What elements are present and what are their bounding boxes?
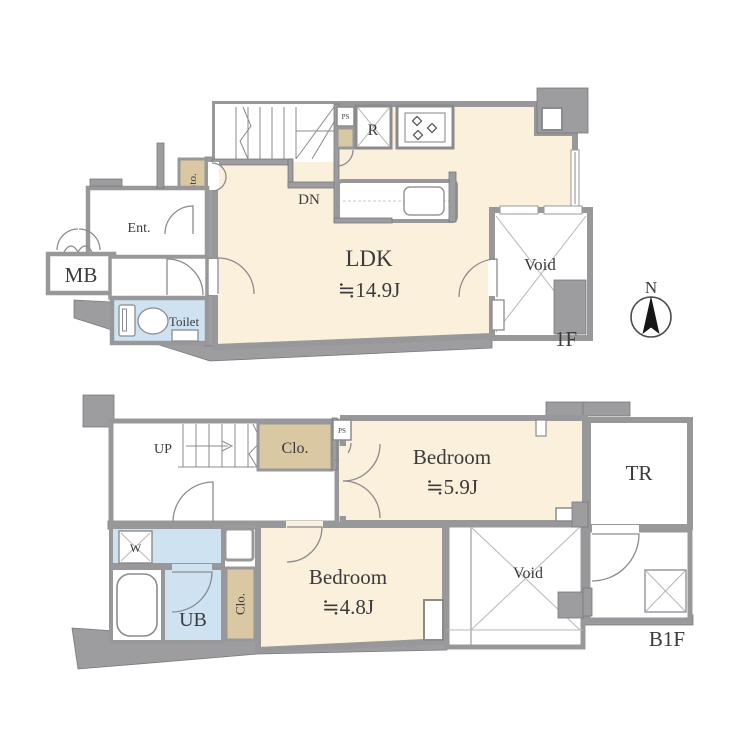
bedroom-b: Bedroom ≒4.8J bbox=[258, 521, 445, 650]
mailbox-label: MB bbox=[65, 263, 98, 287]
small-closet-box bbox=[337, 128, 354, 148]
void-1f-label: Void bbox=[524, 255, 556, 274]
north-label: N bbox=[645, 278, 657, 297]
wall-segment bbox=[90, 179, 122, 186]
refrigerator-label: R bbox=[368, 122, 379, 139]
bedroom-a-room bbox=[343, 418, 585, 523]
bedroom-a-name-label: Bedroom bbox=[413, 445, 491, 469]
stairs-up-label: UP bbox=[154, 442, 172, 457]
wall-block bbox=[554, 280, 586, 334]
floor-plan-canvas: DN PS R Sto bbox=[0, 0, 734, 734]
door-opening bbox=[488, 260, 497, 296]
door-opening bbox=[592, 525, 639, 534]
bedroom-b-name-label: Bedroom bbox=[309, 565, 387, 589]
trunk-room-label: TR bbox=[626, 461, 653, 485]
window bbox=[544, 206, 582, 214]
wall-segment bbox=[449, 172, 456, 222]
pillar bbox=[424, 600, 443, 640]
kitchen-sink bbox=[404, 187, 444, 215]
pipe-space-1f-label: PS bbox=[342, 113, 350, 121]
wall-segment bbox=[157, 143, 164, 188]
void-b1f-label: Void bbox=[513, 565, 543, 582]
washbasin-box bbox=[225, 529, 253, 560]
storage-right-room bbox=[583, 525, 690, 620]
floor-b1f-plan: UP Clo. PS Bedroom ≒5.9J W bbox=[72, 395, 693, 669]
floor-b1f-label: B1F bbox=[649, 627, 685, 651]
wall-block bbox=[558, 592, 583, 618]
door-opening bbox=[208, 162, 219, 190]
toilet-cabinet bbox=[172, 330, 198, 341]
wall-block bbox=[583, 588, 592, 616]
wall-block bbox=[572, 502, 588, 527]
exterior-wall-block bbox=[583, 402, 630, 416]
bedroom-b-area-label: ≒4.8J bbox=[322, 595, 374, 619]
wall-segment bbox=[212, 159, 292, 165]
wall-segment bbox=[288, 182, 339, 188]
ldk-area-label: ≒14.9J bbox=[338, 278, 401, 302]
stairs-down-label: DN bbox=[298, 192, 320, 208]
unit-bath-label: UB bbox=[179, 609, 207, 631]
door-opening bbox=[286, 521, 323, 530]
pillar bbox=[542, 108, 562, 130]
toilet-room: Toilet bbox=[112, 298, 207, 343]
compass: N bbox=[631, 278, 671, 337]
stove-top bbox=[405, 113, 445, 142]
bathroom-row: UB Clo. bbox=[111, 564, 271, 642]
bedroom-a: PS Bedroom ≒5.9J bbox=[333, 418, 585, 523]
toilet-label: Toilet bbox=[169, 314, 200, 329]
floor-plan-page: DN PS R Sto bbox=[0, 0, 734, 734]
washer-label: W bbox=[130, 541, 142, 555]
stairs-b1f: UP Clo. bbox=[111, 418, 337, 523]
entrance-label: Ent. bbox=[128, 221, 151, 236]
window bbox=[536, 420, 546, 436]
pipe-space-b1f-label: PS bbox=[338, 427, 346, 435]
hall-1f bbox=[110, 257, 207, 298]
door-opening bbox=[172, 564, 212, 571]
ldk-name-label: LDK bbox=[345, 246, 393, 271]
closet-upper-label: Clo. bbox=[281, 440, 308, 457]
window bbox=[500, 206, 538, 214]
bedroom-a-area-label: ≒5.9J bbox=[426, 475, 478, 499]
washroom: W bbox=[111, 527, 253, 565]
trunk-room: TR bbox=[572, 420, 690, 527]
pillar bbox=[492, 300, 504, 330]
stairs-floor bbox=[215, 104, 337, 162]
bathtub-icon bbox=[117, 574, 157, 636]
floor-1f-label: 1F bbox=[555, 327, 577, 351]
closet-lower-label: Clo. bbox=[233, 593, 248, 615]
floor-1f-plan: DN PS R Sto bbox=[48, 88, 590, 361]
void-b1f: Void bbox=[447, 525, 583, 647]
wall-segment bbox=[334, 218, 392, 223]
void-1f: Void bbox=[492, 206, 590, 338]
